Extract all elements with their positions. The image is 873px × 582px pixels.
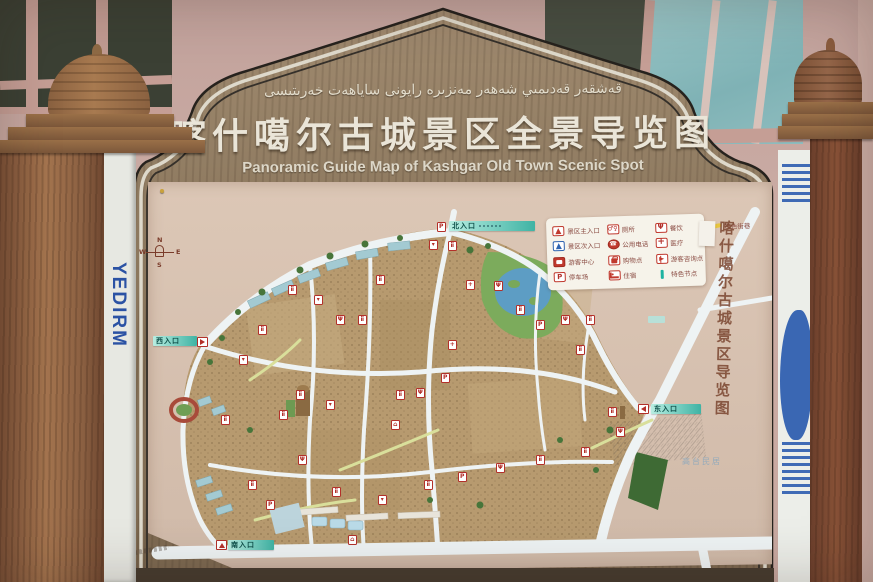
poi-marker-food: Ψ xyxy=(416,388,425,398)
sign-stripe-decor xyxy=(782,442,810,494)
poi-marker-shop: ▾ xyxy=(239,355,248,365)
poi-marker-food: Ψ xyxy=(494,281,503,291)
left-side-sign-text: YEDIRM xyxy=(107,262,129,348)
poi-marker-shop: ▾ xyxy=(326,400,335,410)
ground-shadow xyxy=(134,568,774,582)
poi-marker-food: Ψ xyxy=(616,427,625,437)
left-finial-tier xyxy=(0,140,205,153)
poi-marker-shop: ▾ xyxy=(429,240,438,250)
poi-marker-wc: ii xyxy=(288,285,297,295)
poi-marker-wc: ii xyxy=(248,480,257,490)
poi-marker-shop: ▾ xyxy=(378,495,387,505)
poi-marker-food: Ψ xyxy=(496,463,505,473)
poi-marker-wc: ii xyxy=(536,455,545,465)
poi-marker-med: + xyxy=(466,280,475,290)
poi-marker-wc: ii xyxy=(258,325,267,335)
poi-marker-shop: ▾ xyxy=(314,295,323,305)
poi-marker-med: + xyxy=(448,340,457,350)
poi-marker-p: P xyxy=(266,500,275,510)
poi-marker-food: Ψ xyxy=(298,455,307,465)
poi-marker-wc: ii xyxy=(376,275,385,285)
poi-marker-wc: ii xyxy=(358,315,367,325)
poi-marker-wc: ii xyxy=(448,241,457,251)
poi-marker-wc: ii xyxy=(581,447,590,457)
road-mini-label xyxy=(648,316,665,323)
right-finial-tier xyxy=(788,102,873,114)
poi-marker-wc: ii xyxy=(586,315,595,325)
right-side-sign xyxy=(778,150,814,582)
sign-blue-decor xyxy=(780,310,812,440)
poi-marker-wc: ii xyxy=(296,390,305,400)
left-wooden-post xyxy=(0,150,104,582)
poi-marker-food: Ψ xyxy=(336,315,345,325)
poi-marker-food: Ψ xyxy=(561,315,570,325)
right-wooden-post xyxy=(810,138,862,582)
right-finial-tier xyxy=(778,126,873,139)
sign-stripe-decor xyxy=(782,162,810,202)
poi-marker-bed: ⌂ xyxy=(348,535,357,545)
poi-marker-wc: ii xyxy=(221,415,230,425)
left-finial-tier xyxy=(8,127,192,140)
poi-marker-p: P xyxy=(536,320,545,330)
poi-marker-wc: ii xyxy=(516,305,525,315)
poi-marker-bed: ⌂ xyxy=(391,420,400,430)
poi-marker-wc: ii xyxy=(576,345,585,355)
poi-marker-p: P xyxy=(458,472,467,482)
photo-of-map-sign: قەشقەر قەدىمىي شەھەر مەنزىرە رايونى سايا… xyxy=(0,0,873,582)
poi-marker-wc: ii xyxy=(424,480,433,490)
left-side-sign xyxy=(101,146,136,582)
poi-marker-wc: ii xyxy=(332,487,341,497)
right-finial-tier xyxy=(782,114,873,126)
poi-marker-wc: ii xyxy=(279,410,288,420)
poi-marker-wc: ii xyxy=(608,407,617,417)
brass-nail xyxy=(160,189,164,193)
poi-marker-p: P xyxy=(441,373,450,383)
left-finial-tier xyxy=(26,114,174,127)
poi-marker-p: P xyxy=(437,222,446,232)
poi-marker-wc: ii xyxy=(396,390,405,400)
